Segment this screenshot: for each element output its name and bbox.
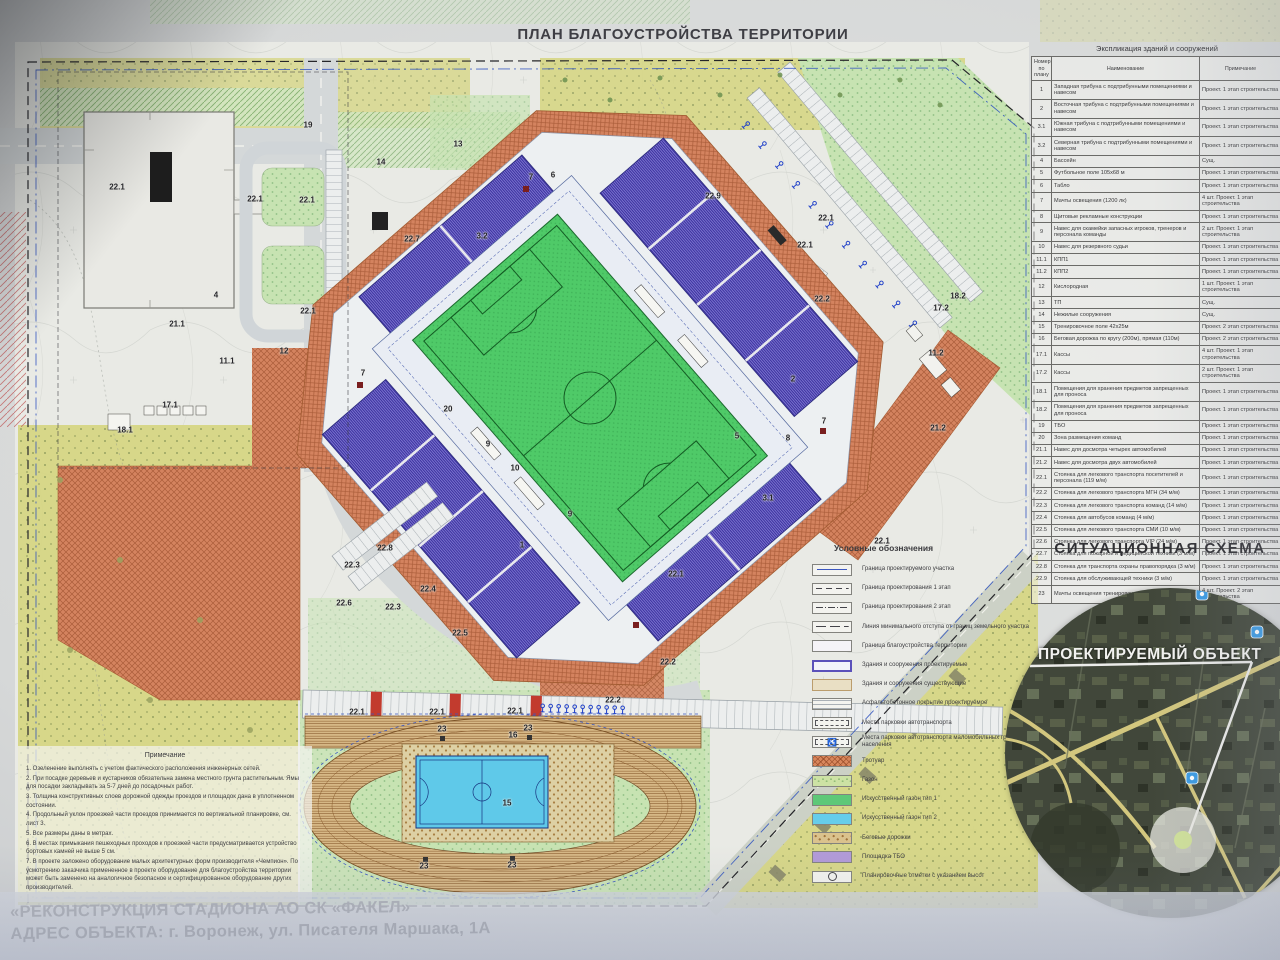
legend-item: Линия минимального отступа от границ зем… [812, 618, 1030, 637]
legend-label: Газон [862, 777, 878, 784]
plan-label: 5 [735, 432, 739, 441]
note-line: 2. При посадке деревьев и кустарников об… [26, 775, 304, 792]
legend-item: Граница проектирования 1 этап [812, 579, 1030, 598]
legend-label: Искусственный газон тип 2 [862, 815, 937, 822]
explication-row: 21.1Навес для досмотра четырех автомобил… [1032, 444, 1280, 456]
explication-row: 8Щитовые рекламные конструкцииПроект. 1 … [1032, 211, 1280, 223]
legend-swatch [812, 755, 852, 767]
legend-swatch [812, 698, 852, 710]
legend-swatch [812, 717, 852, 729]
plan-label: 14 [377, 158, 386, 167]
plan-label: 3.1 [762, 494, 773, 503]
red-hatch-edge [0, 212, 26, 427]
plan-label: 8 [786, 434, 790, 443]
plan-label: 22.1 [109, 183, 125, 192]
plan-label: 22.7 [404, 235, 420, 244]
explication-row: 6ТаблоПроект. 1 этап строительства [1032, 180, 1280, 192]
legend-swatch: ♿ [812, 736, 852, 748]
explication-row: 18.1Помещения для хранения предметов зап… [1032, 383, 1280, 402]
plan-label: 22.1 [797, 241, 813, 250]
legend-label: Искусственный газон тип 1 [862, 796, 937, 803]
plan-label: 18.2 [950, 292, 966, 301]
legend-swatch [812, 660, 852, 672]
note-line: 5. Все размеры даны в метрах. [26, 830, 304, 839]
explication-table: Номер по плану Наименование Примечание 1… [1031, 56, 1280, 604]
explication-row: 15Тренировочное поле 42х25мПроект. 2 эта… [1032, 321, 1280, 333]
plan-label: 9 [568, 510, 572, 519]
legend-item: Граница благоустройства территории [812, 637, 1030, 656]
plan-label: 11.1 [219, 357, 234, 366]
explication-row: 3.1Южная трибуна с подтрибунными помещен… [1032, 118, 1280, 137]
plan-label: 3.2 [476, 232, 487, 241]
plan-label: 22.1 [299, 196, 315, 205]
legend-swatch [812, 640, 852, 652]
plan-label: 22.1 [507, 707, 523, 716]
plan-label: 7 [822, 417, 826, 426]
scanned-plan-photo: { "page": { "title": "ПЛАН БЛАГОУСТРОЙСТ… [0, 0, 1280, 960]
plan-label: 10 [511, 464, 520, 473]
explication-row: 11.1КПП1Проект. 1 этап строительства [1032, 254, 1280, 266]
paper-bottom-shade [0, 892, 1280, 960]
plan-label: 22.1 [874, 537, 890, 546]
legend-swatch [812, 813, 852, 825]
legend-item: Тротуар [812, 752, 1030, 771]
explication-row: 18.2Помещения для хранения предметов зап… [1032, 401, 1280, 420]
legend-label: Линия минимального отступа от границ зем… [862, 624, 1029, 631]
plan-label: 7 [361, 369, 365, 378]
plan-label: 1 [520, 541, 524, 550]
legend-item: Планировочные отметки с указанием высот [812, 867, 1030, 886]
plan-label: 22.2 [605, 696, 621, 705]
explication-row: 10Навес для резервного судьиПроект. 1 эт… [1032, 241, 1280, 253]
explication-row: 17.2Кассы2 шт. Проект. 1 этап строительс… [1032, 364, 1280, 383]
legend-item: Асфальтобетонное покрытие проектируемое [812, 694, 1030, 713]
plan-label: 22.1 [247, 195, 263, 204]
plan-label: 22.1 [429, 708, 445, 717]
plan-label: 23 [438, 725, 447, 734]
legend-label: Граница благоустройства территории [862, 643, 967, 650]
plan-label: 7 [529, 173, 533, 182]
plan-label: 9 [486, 440, 490, 449]
notes-panel: Примечание 1. Озеленение выполнять с уче… [18, 746, 312, 902]
legend-swatch [812, 832, 852, 844]
explication-body: 1Западная трибуна с подтрибунными помеще… [1032, 81, 1280, 604]
plan-label: 15 [503, 799, 512, 808]
explication-row: 9Навес для скамейки запасных игроков, тр… [1032, 223, 1280, 242]
explication-row: 12Кислородная1 шт. Проект. 1 этап строит… [1032, 278, 1280, 297]
col-number: Номер по плану [1032, 57, 1052, 81]
plan-label: 20 [444, 405, 453, 414]
col-name: Наименование [1052, 57, 1200, 81]
legend-item: Места парковки автотранспорта [812, 714, 1030, 733]
explication-row: 7Мачты освещения (1200 лк)4 шт. Проект. … [1032, 192, 1280, 211]
explication-row: 1Западная трибуна с подтрибунными помеще… [1032, 81, 1280, 100]
explication-row: 22.8Стоянка для транспорта охраны правоп… [1032, 561, 1280, 573]
legend-item: Искусственный газон тип 2 [812, 809, 1030, 828]
plan-label: 12 [280, 347, 289, 356]
note-line: 1. Озеленение выполнять с учетом фактиче… [26, 765, 304, 774]
explication-row: 22.4Стоянка для автобусов команд (4 м/м)… [1032, 512, 1280, 524]
plan-label: 18.1 [117, 426, 133, 435]
explication-row: 13ТПСущ. [1032, 297, 1280, 309]
plan-label: 19 [304, 121, 313, 130]
explication-row: 16Беговая дорожка по кругу (200м), пряма… [1032, 333, 1280, 345]
plan-label: 22.1 [349, 708, 365, 717]
legend-label: Граница проектирования 2 этап [862, 604, 951, 611]
explication-row: 17.1Кассы4 шт. Проект. 1 этап строительс… [1032, 346, 1280, 365]
legend-label: Тротуар [862, 758, 884, 765]
plan-label: 22.2 [814, 295, 830, 304]
legend-label: Граница проектирования 1 этап [862, 585, 951, 592]
plan-label: 22.9 [705, 192, 721, 201]
explication-row: 22.9Стоянка для обслуживающей техники (3… [1032, 573, 1280, 585]
explication-row: 20Зона размещения командПроект. 1 этап с… [1032, 432, 1280, 444]
legend-swatch [812, 871, 852, 883]
explication-row: 14Нежилые сооруженияСущ. [1032, 309, 1280, 321]
plan-label: 21.1 [169, 320, 185, 329]
notes-list: 1. Озеленение выполнять с учетом фактиче… [26, 765, 304, 893]
plan-label: 17.1 [162, 401, 178, 410]
explication-title: Экспликация зданий и сооружений [1031, 44, 1280, 53]
plan-label: 22.1 [300, 307, 316, 316]
plan-label: 17.2 [933, 304, 949, 313]
legend-label: Планировочные отметки с указанием высот [862, 873, 984, 880]
plan-label: 6 [551, 171, 555, 180]
explication-row: 21.2Навес для досмотра двух автомобилейП… [1032, 457, 1280, 469]
legend-label: Граница проектируемого участка [862, 566, 954, 573]
legend-label: Здания и сооружения существующие [862, 681, 966, 688]
plan-label: 4 [214, 291, 218, 300]
explication-row: 4БассейнСущ. [1032, 155, 1280, 167]
projected-object-label: ПРОЕКТИРУЕМЫЙ ОБЪЕКТ [1038, 646, 1273, 664]
plan-label: 16 [509, 731, 518, 740]
note-line: 7. В проекте заложено оборудование малых… [26, 858, 304, 893]
explication-row: 22.5Стоянка для легкового транспорта СМИ… [1032, 524, 1280, 536]
situational-title: СИТУАЦИОННАЯ СХЕМА [1040, 540, 1280, 557]
legend-label: Площадка ТБО [862, 854, 905, 861]
plan-label: 22.1 [668, 570, 684, 579]
explication-row: 11.2КПП2Проект. 1 этап строительства [1032, 266, 1280, 278]
legend-title: Условные обозначения [834, 543, 1030, 553]
legend-item: ♿Места парковки автотранспорта маломобил… [812, 733, 1030, 752]
plan-label: 22.3 [385, 603, 401, 612]
plan-label: 2 [791, 375, 795, 384]
legend-swatch [812, 583, 852, 595]
plan-label: 11.2 [928, 349, 943, 358]
col-note: Примечание [1200, 57, 1280, 81]
note-line: 4. Продольный уклон проезжей части проез… [26, 811, 304, 828]
explication-row: 22.2Стоянка для легкового транспорта МГН… [1032, 487, 1280, 499]
legend-item: Газон [812, 771, 1030, 790]
legend-item: Беговые дорожки [812, 829, 1030, 848]
note-line: 6. В местах примыкания пешеходных проход… [26, 840, 304, 857]
legend-swatch [812, 794, 852, 806]
legend-item: Искусственный газон тип 1 [812, 790, 1030, 809]
plan-label: 23 [508, 861, 517, 870]
legend-label: Места парковки автотранспорта [862, 720, 952, 727]
legend-label: Беговые дорожки [862, 835, 911, 842]
legend-swatch [812, 564, 852, 576]
plan-label: 22.4 [420, 585, 436, 594]
explication-row: 22.1Стоянка для легкового транспорта пос… [1032, 469, 1280, 488]
explication-row: 2Восточная трибуна с подтрибунными помещ… [1032, 100, 1280, 119]
explication-row: 22.3Стоянка для легкового транспорта ком… [1032, 500, 1280, 512]
legend-item: Граница проектируемого участка [812, 560, 1030, 579]
legend-item: Площадка ТБО [812, 848, 1030, 867]
legend-swatch [812, 851, 852, 863]
legend-label: Асфальтобетонное покрытие проектируемое [862, 700, 987, 707]
legend-label: Здания и сооружения проектируемые [862, 662, 967, 669]
plan-label: 22.3 [344, 561, 360, 570]
plan-label: 23 [524, 724, 533, 733]
plan-label: 22.6 [336, 599, 352, 608]
plan-label: 22.2 [660, 658, 676, 667]
legend-swatch [812, 621, 852, 633]
notes-title: Примечание [26, 752, 304, 759]
legend-swatch [812, 679, 852, 691]
plan-label: 22.1 [818, 214, 834, 223]
explication-panel: Экспликация зданий и сооружений Номер по… [1031, 44, 1280, 604]
page-title: ПЛАН БЛАГОУСТРОЙСТВА ТЕРРИТОРИИ [517, 26, 848, 43]
explication-row: 19ТБОПроект. 1 этап строительства [1032, 420, 1280, 432]
legend-swatch [812, 775, 852, 787]
legend-item: Здания и сооружения проектируемые [812, 656, 1030, 675]
note-line: 3. Толщина конструктивных слоев дорожной… [26, 793, 304, 810]
plan-label: 23 [420, 862, 429, 871]
plan-label: 22.5 [452, 629, 468, 638]
explication-header-row: Номер по плану Наименование Примечание [1032, 57, 1280, 81]
legend-swatch [812, 602, 852, 614]
plan-label: 21.2 [930, 424, 946, 433]
legend-item: Здания и сооружения существующие [812, 675, 1030, 694]
legend-item: Граница проектирования 2 этап [812, 598, 1030, 617]
plan-label: 22.8 [377, 544, 393, 553]
legend-items: Граница проектируемого участкаГраница пр… [812, 560, 1030, 886]
legend-panel: Условные обозначения Граница проектируем… [812, 543, 1030, 886]
plan-label: 13 [454, 140, 463, 149]
explication-row: 3.2Северная трибуна с подтрибунными поме… [1032, 137, 1280, 156]
explication-row: 5Футбольное поле 105х68 мПроект. 1 этап … [1032, 168, 1280, 180]
